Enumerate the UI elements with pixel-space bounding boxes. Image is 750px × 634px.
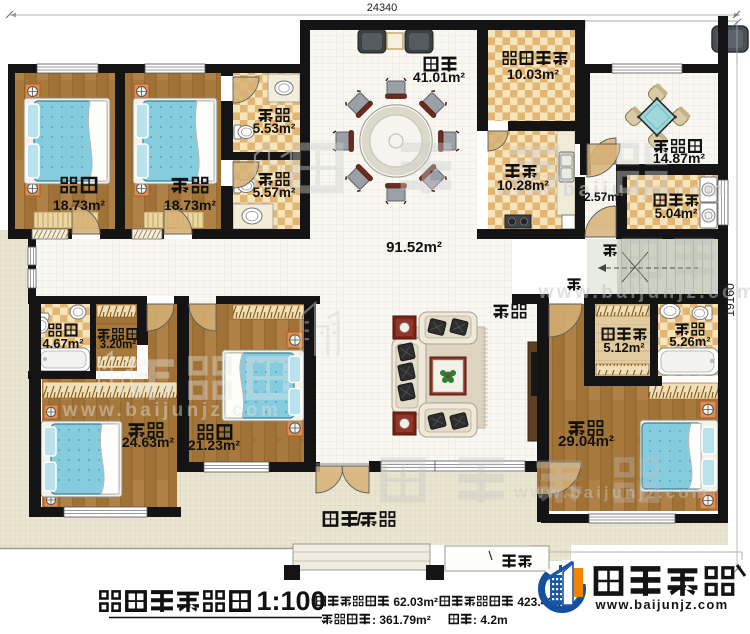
svg-text:: 4.2m: : 4.2m [473, 613, 508, 627]
svg-text:18.73m²: 18.73m² [164, 197, 216, 213]
svg-text:4.67m²: 4.67m² [42, 336, 84, 351]
svg-text:: 361.79m²: : 361.79m² [372, 613, 431, 627]
svg-text:18.73m²: 18.73m² [53, 197, 105, 213]
svg-text:5.04m²: 5.04m² [655, 206, 698, 221]
svg-text:1:100: 1:100 [256, 586, 325, 616]
svg-text:www.baijunjz.com: www.baijunjz.com [538, 282, 750, 303]
svg-text:: 62.03m²: : 62.03m² [386, 595, 438, 609]
svg-text:14.87m²: 14.87m² [653, 150, 705, 166]
svg-text:5.57m²: 5.57m² [253, 185, 296, 200]
svg-text:10.03m²: 10.03m² [507, 66, 559, 82]
svg-text:3.20m²: 3.20m² [100, 339, 137, 351]
svg-text:19160: 19160 [723, 283, 737, 317]
svg-text:21.23m²: 21.23m² [188, 437, 240, 453]
svg-text:91.52m²: 91.52m² [386, 239, 442, 256]
svg-text:10.28m²: 10.28m² [497, 177, 549, 193]
svg-text:www.baijunjz.com: www.baijunjz.com [513, 483, 710, 502]
svg-text:24.63m²: 24.63m² [122, 434, 174, 450]
svg-text:5.26m²: 5.26m² [669, 334, 711, 349]
svg-text:29.04m²: 29.04m² [558, 433, 614, 450]
svg-text:www.baijunjz.com: www.baijunjz.com [595, 597, 729, 612]
svg-text:5.12m²: 5.12m² [603, 340, 645, 355]
svg-text:www.baijunjz.com: www.baijunjz.com [62, 400, 282, 421]
svg-text:41.01m²: 41.01m² [413, 69, 465, 85]
svg-text:24340: 24340 [367, 2, 398, 14]
svg-text:5.53m²: 5.53m² [253, 121, 296, 136]
svg-text:2.57m²: 2.57m² [584, 190, 622, 204]
